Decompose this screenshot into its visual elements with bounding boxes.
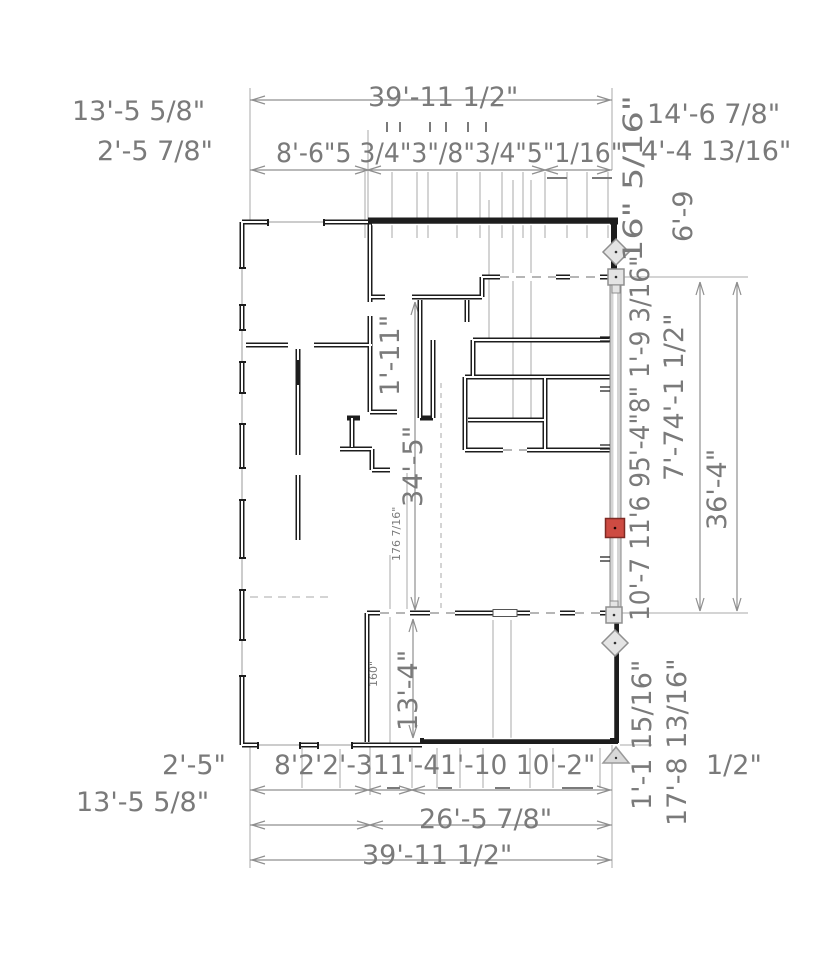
dim-interior-room-depth[interactable]: 13'-4" [395,650,422,731]
wall-move-handle[interactable] [606,519,625,538]
dim-bottom-left-1[interactable]: 2'-5" [162,752,226,779]
dim-interior-small-lower[interactable]: 160" [368,661,379,687]
dim-right-below-3[interactable]: 1/2" [706,752,762,779]
window-symbol[interactable] [493,610,517,617]
dim-interior-vertical-total[interactable]: 34'-5" [400,426,427,507]
dim-right-stack-inner[interactable]: 10'-7 11'6 95'-4"8" 1'-9 3/16" [627,256,654,621]
dim-right-rotated-upper-2[interactable]: 6'-9 [670,190,697,242]
dim-bottom-segments[interactable]: 8'2'2'-311'-41'-10 10'-2" [274,752,595,779]
floor-plan-canvas: 39'-11 1/2" 13'-5 5/8" 2'-5 7/8" 8'-6"5 … [0,0,840,955]
dim-right-below-2[interactable]: 17'-8 13/16" [664,658,691,826]
dim-interior-chase[interactable]: 1'-11" [377,315,404,396]
selected-wall[interactable] [600,283,621,615]
wall-rotate-handle-bottom[interactable] [602,630,628,656]
dim-right-total[interactable]: 36'-4" [704,449,731,530]
dim-top-total[interactable]: 39'-11 1/2" [368,84,518,111]
dim-top-right-2[interactable]: 4'-4 13/16" [641,138,791,165]
dim-bottom-left-2[interactable]: 13'-5 5/8" [76,789,209,816]
dim-right-stack-mid[interactable]: 7'-74'-1 1/2" [661,314,688,482]
dim-top-left-2[interactable]: 2'-5 7/8" [97,138,213,165]
wall-extend-handle-triangle[interactable] [603,747,629,763]
dim-top-right-1[interactable]: 14'-6 7/8" [647,101,780,128]
dim-interior-small-upper[interactable]: 176 7/16" [391,507,402,561]
dim-bottom-subtotal[interactable]: 26'-5 7/8" [419,806,552,833]
floor-plan-walls [242,221,618,745]
dim-top-left-1[interactable]: 13'-5 5/8" [72,98,205,125]
dim-top-segments[interactable]: 8'-6"5 3/4"3"/8"3/4"5"1/16" [276,140,622,167]
dim-bottom-total[interactable]: 39'-11 1/2" [362,842,512,869]
dim-right-below-1[interactable]: 1'-1 15/16" [629,660,656,810]
dim-right-rotated-upper[interactable]: 16" 5/16" [620,95,647,262]
